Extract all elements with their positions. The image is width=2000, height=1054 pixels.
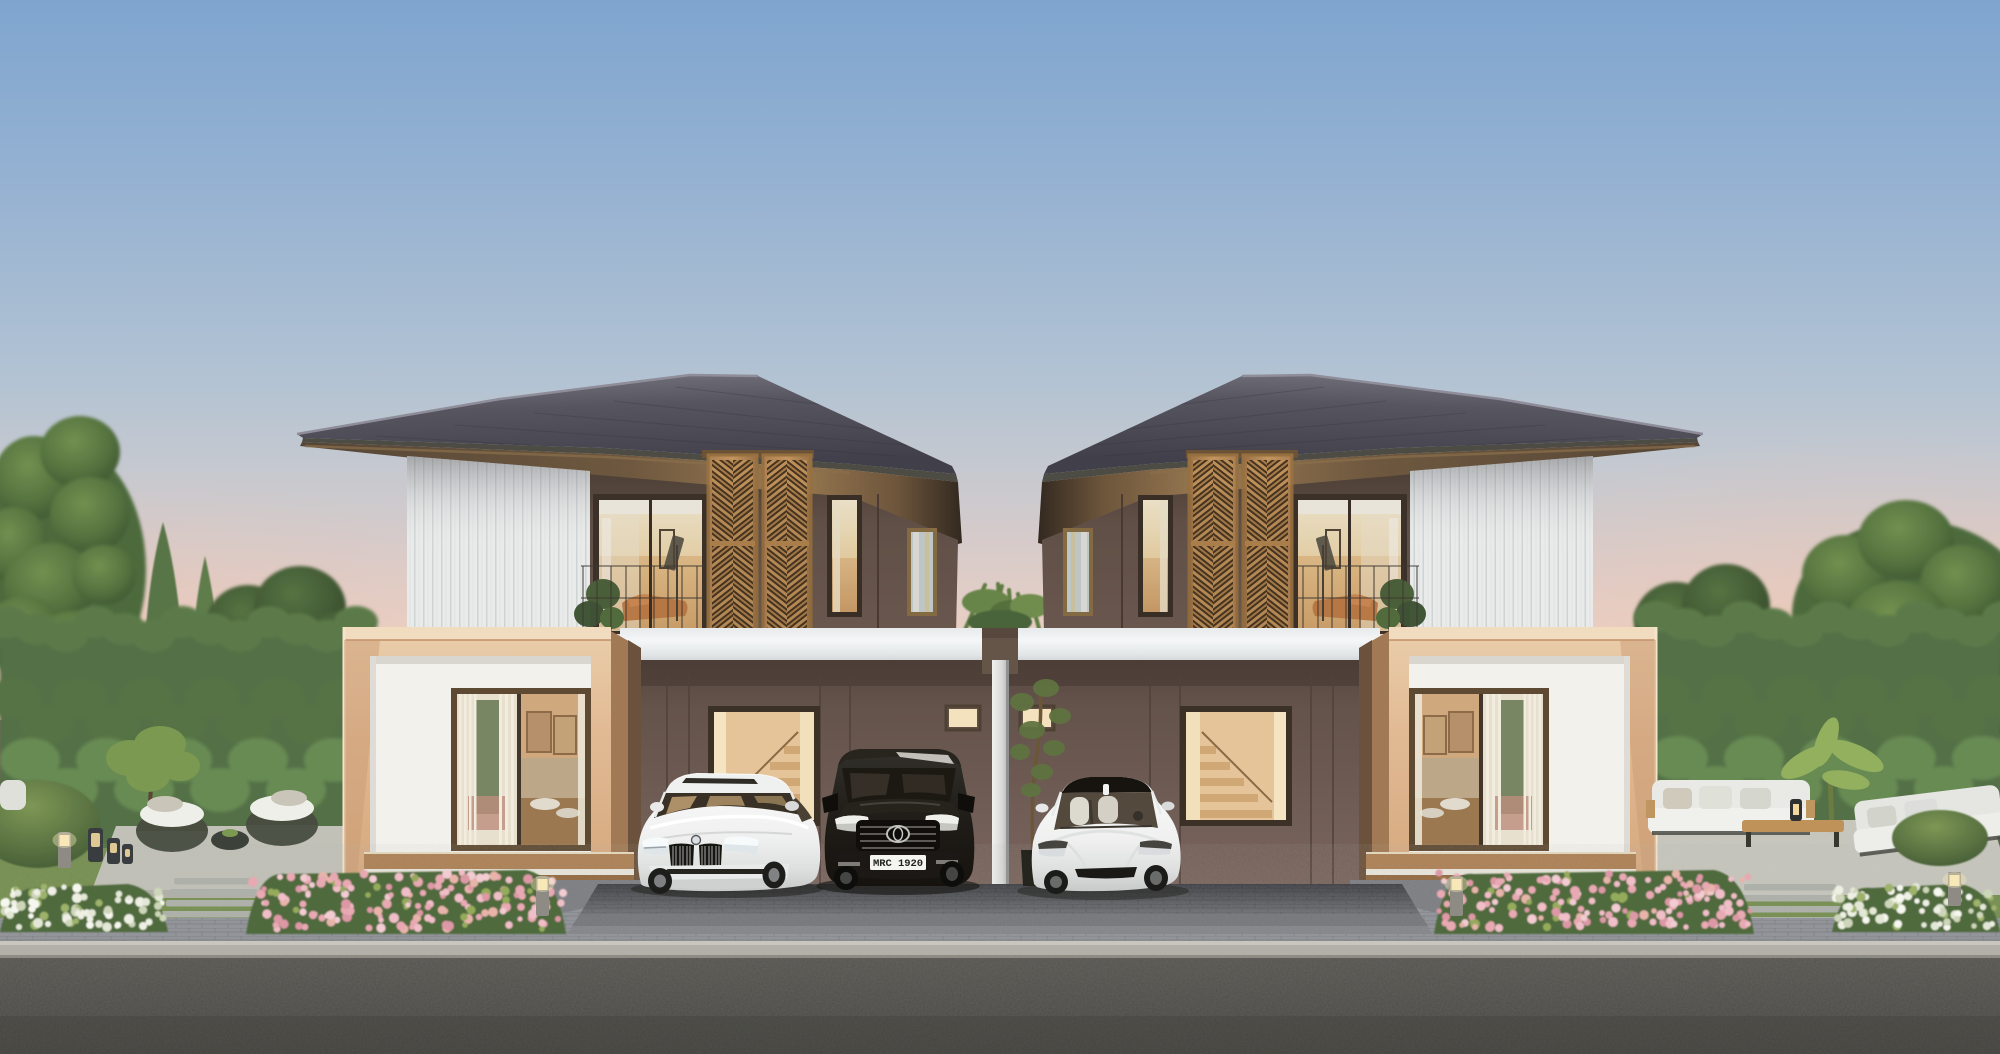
svg-text:MRC 1920: MRC 1920 <box>873 858 923 870</box>
